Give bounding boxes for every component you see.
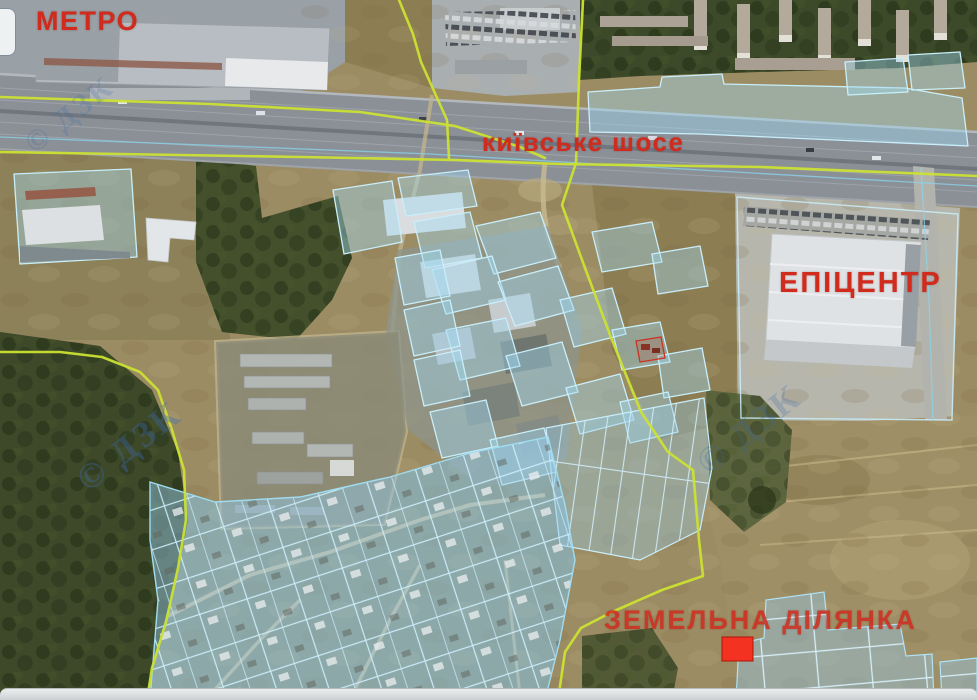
label-epicentr: ЕПІЦЕНТР <box>779 269 942 298</box>
land-plot-marker <box>722 637 753 661</box>
satellite-map-view[interactable]: МЕТРО київське шосе ЕПІЦЕНТР ЗЕМЕЛЬНА ДІ… <box>0 0 977 700</box>
label-highway: київське шосе <box>482 129 684 155</box>
window-bottom-edge <box>0 688 977 700</box>
label-land-plot: ЗЕМЕЛЬНА ДІЛЯНКА <box>604 607 917 634</box>
map-canvas <box>0 0 977 700</box>
label-metro: МЕТРО <box>36 8 139 35</box>
map-control-partial[interactable] <box>0 9 15 55</box>
